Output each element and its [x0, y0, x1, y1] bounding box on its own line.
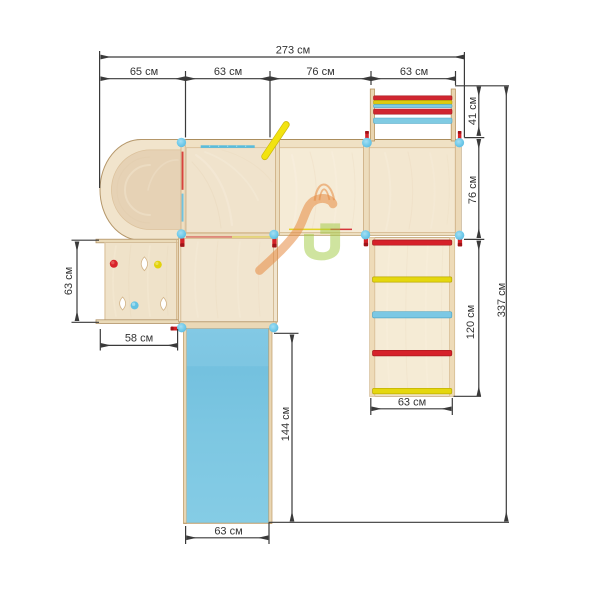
svg-text:63 см: 63 см [400, 66, 428, 78]
svg-text:63 см: 63 см [214, 525, 242, 537]
svg-text:120 см: 120 см [465, 305, 477, 339]
svg-text:337 см: 337 см [496, 283, 508, 317]
svg-text:58 см: 58 см [125, 333, 153, 345]
svg-text:273 см: 273 см [276, 45, 310, 57]
svg-text:63 см: 63 см [214, 66, 242, 78]
svg-text:76 см: 76 см [306, 66, 334, 78]
svg-text:144 см: 144 см [280, 407, 292, 441]
svg-text:63 см: 63 см [63, 267, 75, 295]
svg-text:41 см: 41 см [467, 97, 479, 125]
svg-text:63 см: 63 см [398, 396, 426, 408]
svg-text:76 см: 76 см [467, 176, 479, 204]
svg-text:65 см: 65 см [130, 66, 158, 78]
